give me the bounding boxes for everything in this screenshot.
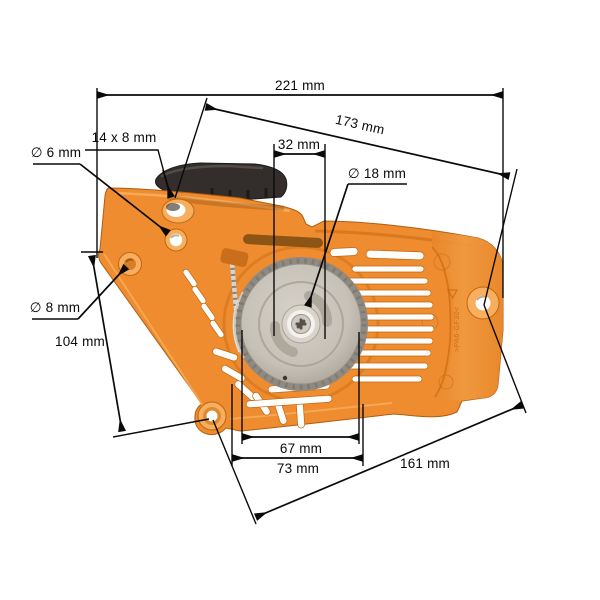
- dim-label-width-total: 221 mm: [275, 78, 325, 93]
- recoil-starter-assembly: >PA6-GF30<: [99, 163, 503, 435]
- dim-label-mount-width-inner: 67 mm: [280, 441, 322, 456]
- vent-slot: [296, 402, 305, 428]
- rim-screw: [283, 376, 287, 380]
- top-slot-2: [366, 250, 424, 260]
- vent-slot: [352, 266, 424, 272]
- dim-label-hub-diameter: ∅ 18 mm: [348, 166, 406, 181]
- vent-slot: [352, 376, 422, 382]
- dim-label-mount-width-outer: 73 mm: [277, 461, 319, 476]
- dim-label-slot-handle: 14 x 8 mm: [92, 130, 157, 145]
- molded-material-text: >PA6-GF30<: [454, 306, 461, 352]
- dim-label-hole-small: ∅ 6 mm: [31, 145, 81, 160]
- bottom-left-lug-hole: [198, 402, 226, 430]
- dim-label-hub-offset: 32 mm: [278, 137, 320, 152]
- dim-label-height-left: 104 mm: [55, 334, 105, 349]
- dim-label-diagonal-upper: 173 mm: [334, 112, 386, 138]
- recoil-pulley: [234, 257, 368, 391]
- right-hole: [467, 287, 499, 319]
- dim-label-hole-side: ∅ 8 mm: [30, 300, 80, 315]
- top-slot-1: [330, 247, 358, 256]
- product-dimension-figure: >PA6-GF30<: [0, 0, 600, 600]
- dim-label-diagonal-lower: 161 mm: [400, 456, 450, 471]
- handle-slot-hole-14x8: [162, 199, 194, 223]
- vent-slot: [347, 278, 428, 284]
